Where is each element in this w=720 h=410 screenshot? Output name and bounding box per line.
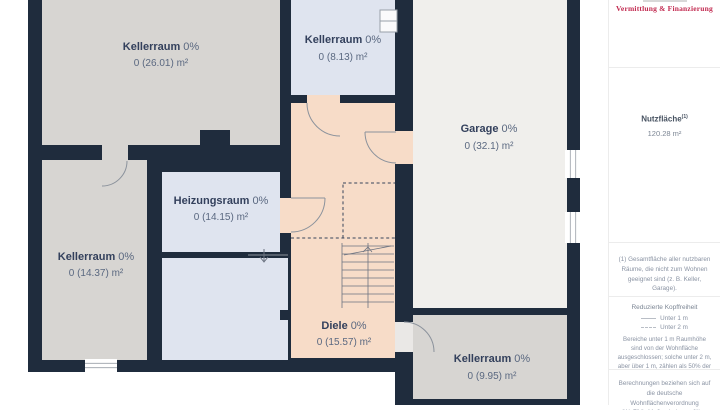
door-gap <box>307 95 340 103</box>
floor-plan: Kellerraum0% 0 (26.01) m² Kellerraum0% 0… <box>0 0 598 405</box>
disclaimer-section: Berechnungen beziehen sich auf die deuts… <box>609 370 720 410</box>
room-area-kellerraum-8: 0 (8.13) m² <box>319 52 369 63</box>
window <box>565 150 581 178</box>
room-floor-garage <box>413 0 567 308</box>
room-area-heizungsraum: 0 (14.15) m² <box>194 212 249 223</box>
room-area-kellerraum-26: 0 (26.01) m² <box>134 58 189 69</box>
room-area-kellerraum-9: 0 (9.95) m² <box>468 371 518 382</box>
usable-area-footnote-ref: (1) <box>682 114 688 120</box>
room-label-garage: Garage0% <box>461 123 518 135</box>
brand-tagline: Vermittlung & Finanzierung <box>609 4 720 13</box>
legend-item-label: Unter 1 m <box>660 315 688 322</box>
dashed-line-swatch <box>641 327 656 328</box>
room-floor-kellerraum-26 <box>42 0 280 145</box>
footnote-text: (1) Gesamtfläche aller nutzbaren Räume, … <box>619 256 711 292</box>
legend-item-under-1m: Unter 1 m <box>609 314 720 323</box>
room-area-kellerraum-14: 0 (14.37) m² <box>69 268 124 279</box>
floor-plan-svg: Kellerraum0% 0 (26.01) m² Kellerraum0% 0… <box>0 0 598 405</box>
room-label-kellerraum-26: Kellerraum0% <box>123 41 200 53</box>
room-area-diele: 0 (15.57) m² <box>317 337 372 348</box>
wall-bump <box>280 310 291 320</box>
legend-note: Bereiche unter 1 m Raumhöhe sind von der… <box>609 332 720 370</box>
window <box>85 359 117 372</box>
usable-area-value: 120.28 m² <box>609 129 720 138</box>
room-area-garage: 0 (32.1) m² <box>465 141 515 152</box>
room-floor-kellerraum-8 <box>291 0 395 95</box>
legend-item-under-2m: Unter 2 m <box>609 323 720 332</box>
door-gap <box>395 322 413 352</box>
room-label-kellerraum-8: Kellerraum0% <box>305 34 382 46</box>
legend-item-label: Unter 2 m <box>660 324 688 331</box>
disclaimer-text: Berechnungen beziehen sich auf die deuts… <box>619 380 711 410</box>
room-label-diele: Diele0% <box>321 320 366 332</box>
brand-logo <box>643 0 687 2</box>
room-label-kellerraum-9: Kellerraum0% <box>454 353 531 365</box>
brand-section: Vermittlung & Finanzierung <box>609 0 720 68</box>
usable-area-text: Nutzfläche <box>641 115 681 124</box>
page: Kellerraum0% 0 (26.01) m² Kellerraum0% 0… <box>0 0 720 405</box>
door-gap <box>395 131 413 164</box>
door-gap <box>280 198 291 233</box>
room-floor-abstellraum <box>162 258 288 360</box>
room-label-heizungsraum: Heizungsraum0% <box>174 195 269 207</box>
legend-title: Reduzierte Kopffreiheit <box>609 304 720 311</box>
sidebar: Vermittlung & Finanzierung Nutzfläche(1)… <box>608 0 720 405</box>
usable-area-label: Nutzfläche(1) <box>609 114 720 124</box>
footnote-section: (1) Gesamtfläche aller nutzbaren Räume, … <box>609 243 720 297</box>
window <box>565 212 581 243</box>
shaft-fixture <box>380 10 397 32</box>
wall-pier <box>200 130 230 145</box>
usable-area-section: Nutzfläche(1) 120.28 m² <box>609 68 720 243</box>
legend-section: Reduzierte Kopffreiheit Unter 1 m Unter … <box>609 297 720 370</box>
room-label-kellerraum-14: Kellerraum0% <box>58 251 135 263</box>
solid-line-swatch <box>641 318 656 319</box>
door-gap <box>102 145 128 160</box>
